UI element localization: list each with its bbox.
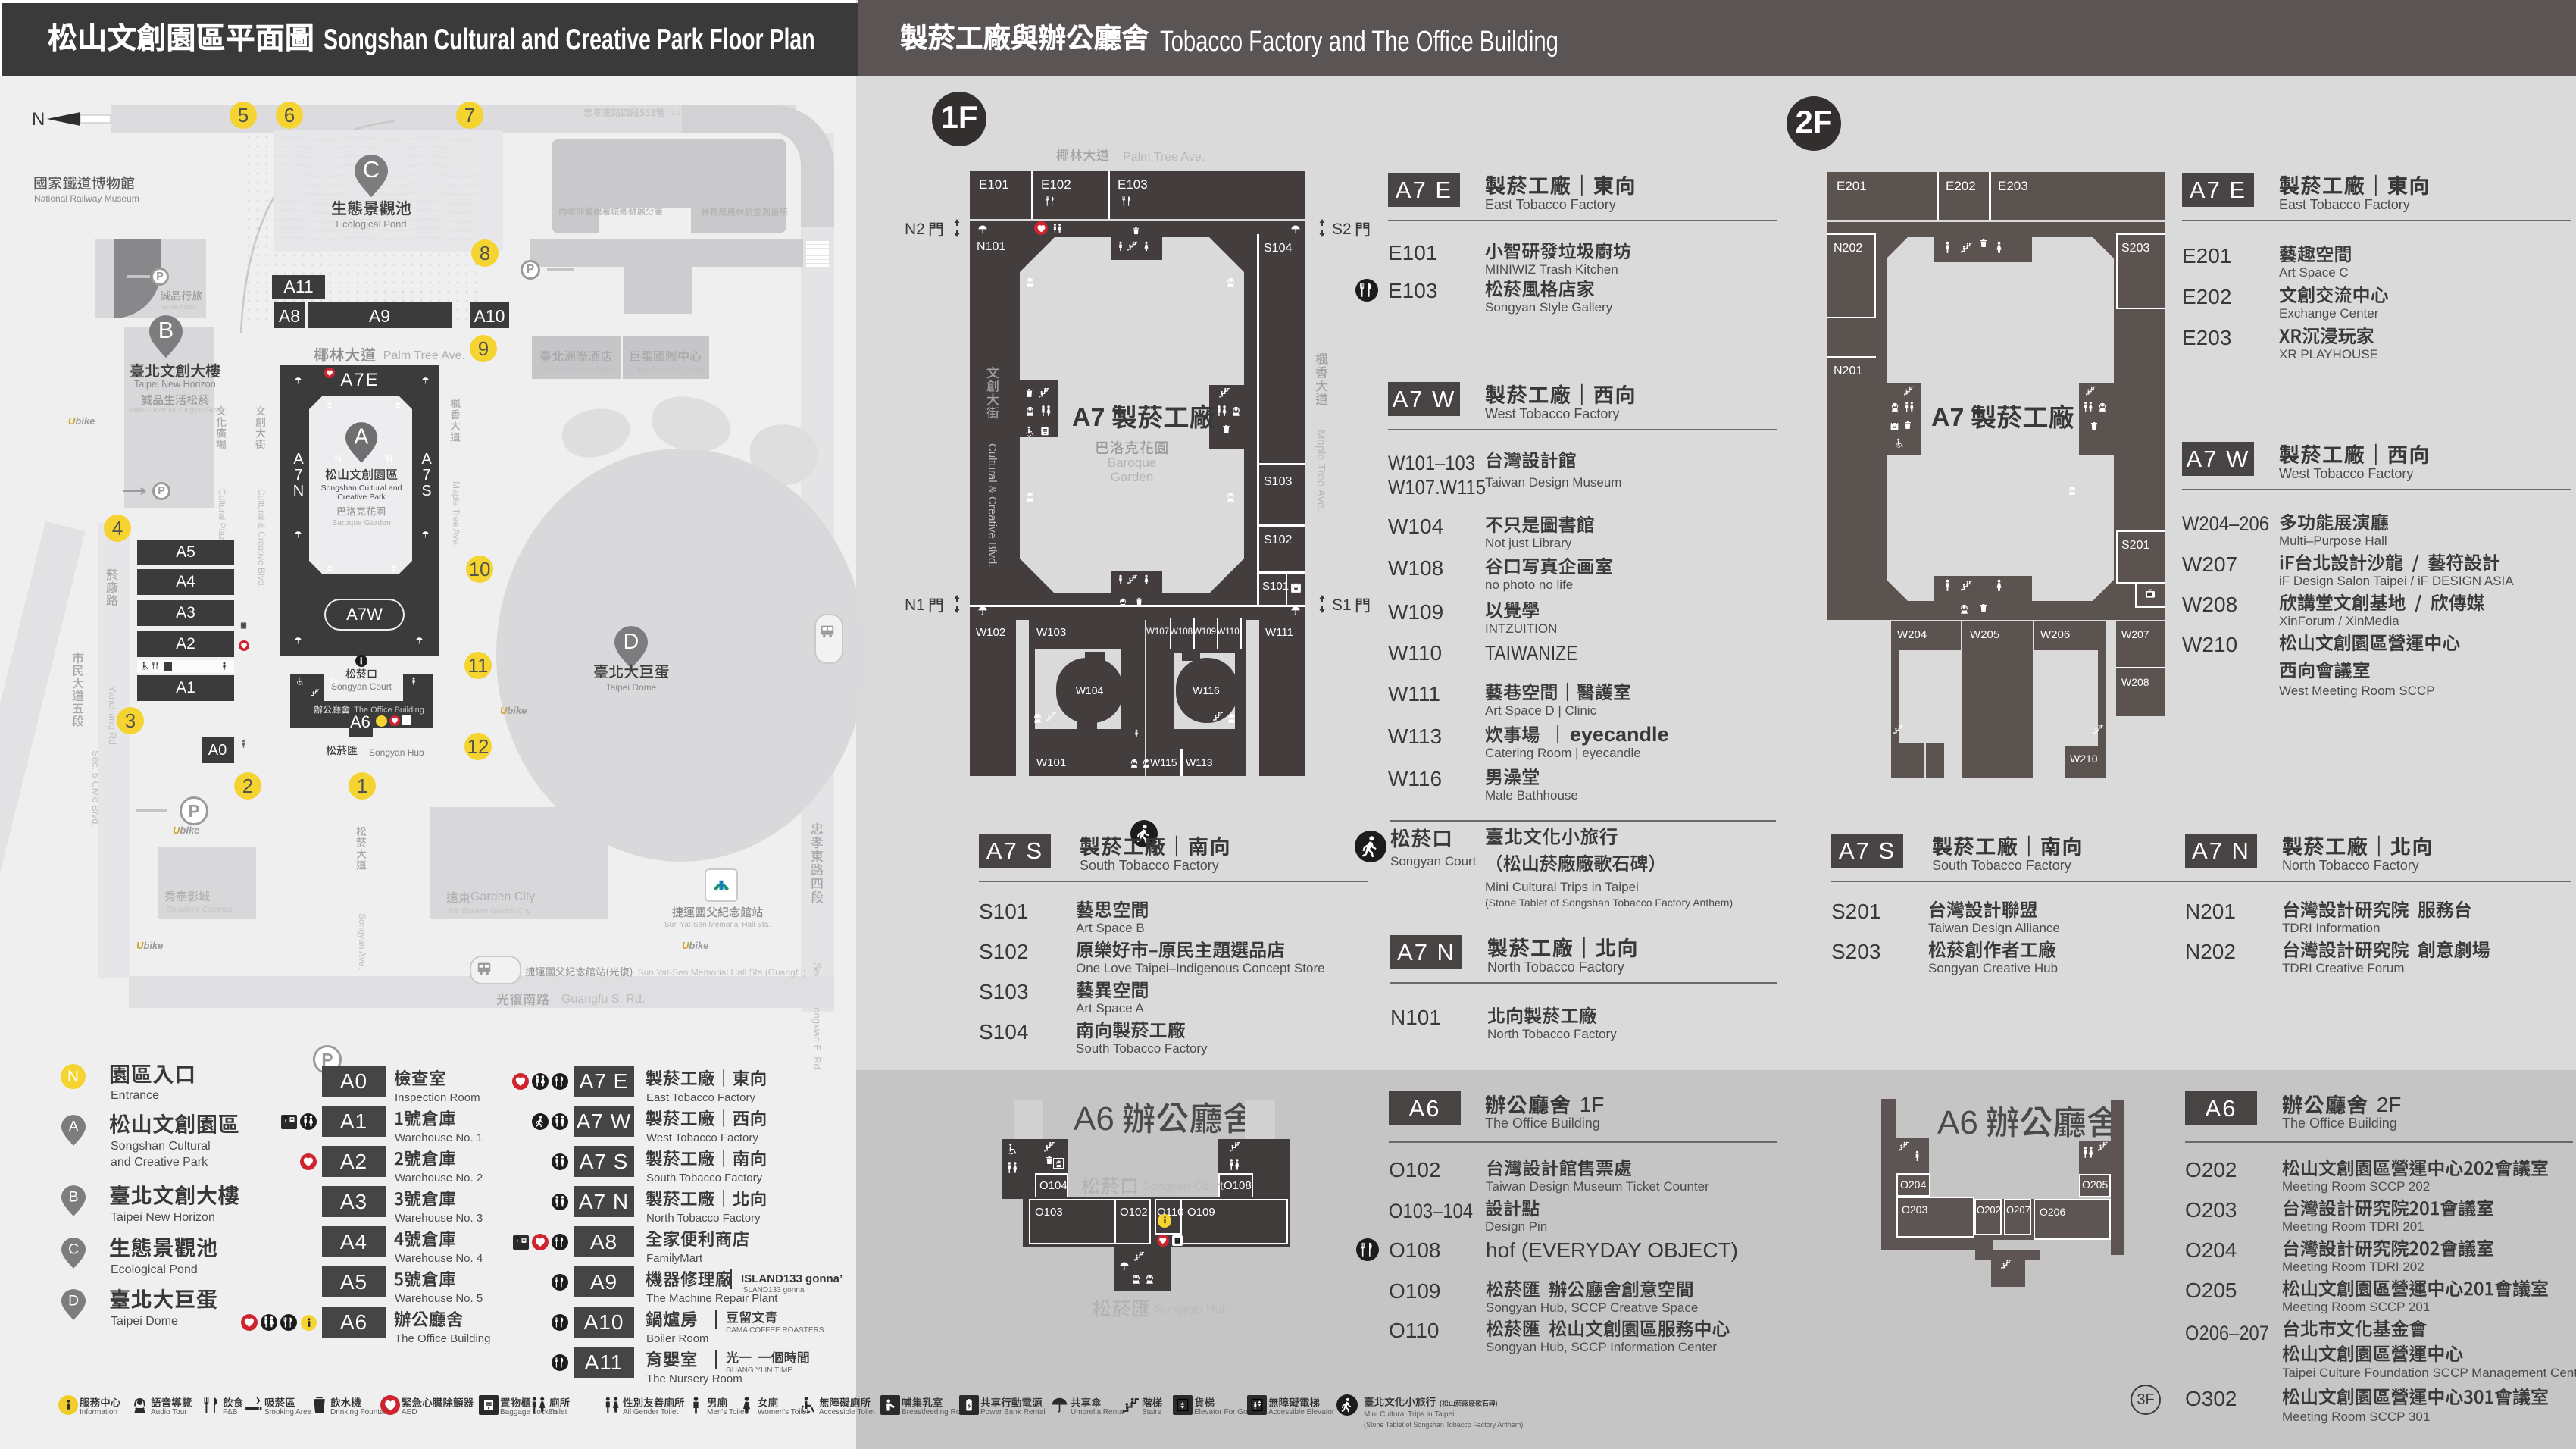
svg-text:B: B xyxy=(158,317,174,343)
svg-text:C: C xyxy=(363,156,380,183)
svg-text:B: B xyxy=(69,1189,79,1205)
svg-text:A: A xyxy=(69,1119,79,1134)
svg-text:D: D xyxy=(624,630,639,654)
svg-text:D: D xyxy=(68,1293,79,1309)
svg-text:C: C xyxy=(68,1241,79,1257)
svg-text:A: A xyxy=(355,425,369,449)
